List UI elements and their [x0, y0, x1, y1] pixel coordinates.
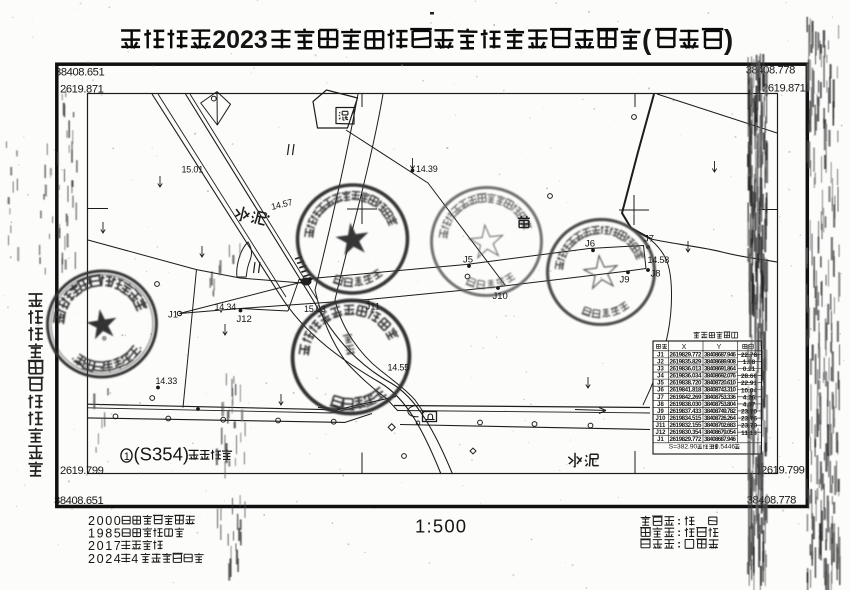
svg-text:38408.651: 38408.651	[54, 495, 103, 507]
svg-text:0.21: 0.21	[743, 366, 756, 373]
svg-text:J11: J11	[366, 302, 381, 313]
svg-text:2619829.772: 2619829.772	[670, 351, 703, 358]
svg-text:14.39: 14.39	[416, 164, 438, 174]
svg-text:38408689.908: 38408689.908	[704, 358, 737, 365]
svg-text:2619837.433: 2619837.433	[670, 408, 703, 415]
svg-text:38408726.264: 38408726.264	[704, 415, 737, 422]
svg-text:14.33: 14.33	[156, 376, 178, 386]
svg-text:4.26: 4.26	[743, 394, 756, 401]
svg-text:2619.799: 2619.799	[60, 465, 104, 477]
svg-text:2619836.034: 2619836.034	[670, 373, 703, 380]
svg-text:38408753.804: 38408753.804	[704, 401, 737, 408]
svg-text:J9: J9	[657, 409, 664, 415]
svg-text:2024: 2024	[88, 552, 122, 566]
svg-text:2619841.818: 2619841.818	[670, 387, 703, 394]
svg-text:J10: J10	[655, 416, 666, 422]
svg-text:38408687.946: 38408687.946	[704, 436, 737, 443]
svg-text:2619832.155: 2619832.155	[670, 422, 703, 429]
svg-text:38408749.782: 38408749.782	[704, 408, 737, 415]
svg-text::: :	[677, 516, 681, 528]
svg-text:J7: J7	[657, 395, 664, 401]
svg-text:38408692.076: 38408692.076	[704, 373, 737, 380]
svg-text:J7: J7	[644, 234, 654, 245]
svg-text:14.58: 14.58	[648, 255, 670, 265]
svg-text:J5: J5	[463, 255, 473, 266]
svg-text:1:500: 1:500	[415, 516, 467, 537]
svg-text:15.01: 15.01	[182, 165, 204, 175]
svg-text::: :	[677, 539, 681, 551]
svg-text:J9: J9	[620, 275, 630, 286]
svg-text:J1: J1	[657, 437, 664, 443]
svg-text:2619829.772: 2619829.772	[670, 436, 703, 443]
svg-text:38408679.054: 38408679.054	[704, 429, 737, 436]
svg-text:2619830.354: 2619830.354	[670, 429, 703, 436]
svg-text:38408687.946: 38408687.946	[704, 351, 737, 358]
svg-text::: :	[677, 527, 681, 539]
svg-text:38408.778: 38408.778	[747, 495, 796, 507]
svg-text:2619834.515: 2619834.515	[670, 415, 703, 422]
svg-text:2619.799: 2619.799	[761, 465, 805, 477]
svg-text:38408753.336: 38408753.336	[704, 394, 737, 401]
svg-text:4: 4	[131, 552, 140, 566]
svg-text:38408691.864: 38408691.864	[704, 365, 737, 372]
svg-text:J3: J3	[657, 366, 664, 372]
svg-text:J5: J5	[657, 381, 664, 387]
svg-text:1: 1	[124, 451, 130, 463]
svg-text:38408720.610: 38408720.610	[704, 380, 737, 387]
svg-text:0.5446: 0.5446	[715, 444, 736, 451]
svg-text:J1: J1	[657, 352, 664, 358]
svg-text:2619.871: 2619.871	[60, 84, 104, 96]
svg-text:15.03: 15.03	[304, 304, 326, 314]
svg-text:J6: J6	[657, 388, 664, 394]
svg-text:S=382.90: S=382.90	[669, 444, 698, 451]
svg-text:14.34: 14.34	[215, 302, 237, 312]
svg-text:J4: J4	[657, 374, 664, 380]
svg-text:2619836.013: 2619836.013	[670, 365, 703, 372]
svg-text:X: X	[682, 344, 687, 351]
svg-text:2619838.030: 2619838.030	[670, 401, 703, 408]
svg-text:J1: J1	[168, 310, 178, 321]
svg-text:38408743.310: 38408743.310	[704, 387, 737, 394]
svg-text:): )	[724, 24, 733, 55]
svg-text:2619.871: 2619.871	[762, 83, 806, 95]
svg-text:(S354): (S354)	[134, 444, 190, 465]
svg-text:J6: J6	[585, 239, 595, 250]
svg-text:2023: 2023	[212, 26, 268, 54]
svg-text:J12: J12	[237, 314, 252, 325]
svg-text:(: (	[642, 24, 652, 55]
svg-text:J12: J12	[655, 430, 666, 436]
svg-text:38408.778: 38408.778	[746, 65, 795, 77]
svg-text:J10: J10	[493, 291, 508, 302]
svg-text:2619838.720: 2619838.720	[670, 380, 703, 387]
svg-text:2619835.829: 2619835.829	[670, 358, 703, 365]
svg-text:J8: J8	[651, 269, 661, 280]
svg-text:2017: 2017	[88, 539, 122, 553]
svg-text:38408.651: 38408.651	[55, 67, 104, 79]
svg-text:38408702.683: 38408702.683	[704, 422, 737, 429]
svg-text:2619842.269: 2619842.269	[670, 394, 703, 401]
svg-text:J2: J2	[657, 359, 664, 365]
svg-text:J8: J8	[657, 402, 664, 408]
svg-text:J11: J11	[656, 423, 666, 429]
svg-text:Y: Y	[717, 344, 722, 351]
svg-text:1.98: 1.98	[743, 359, 756, 366]
